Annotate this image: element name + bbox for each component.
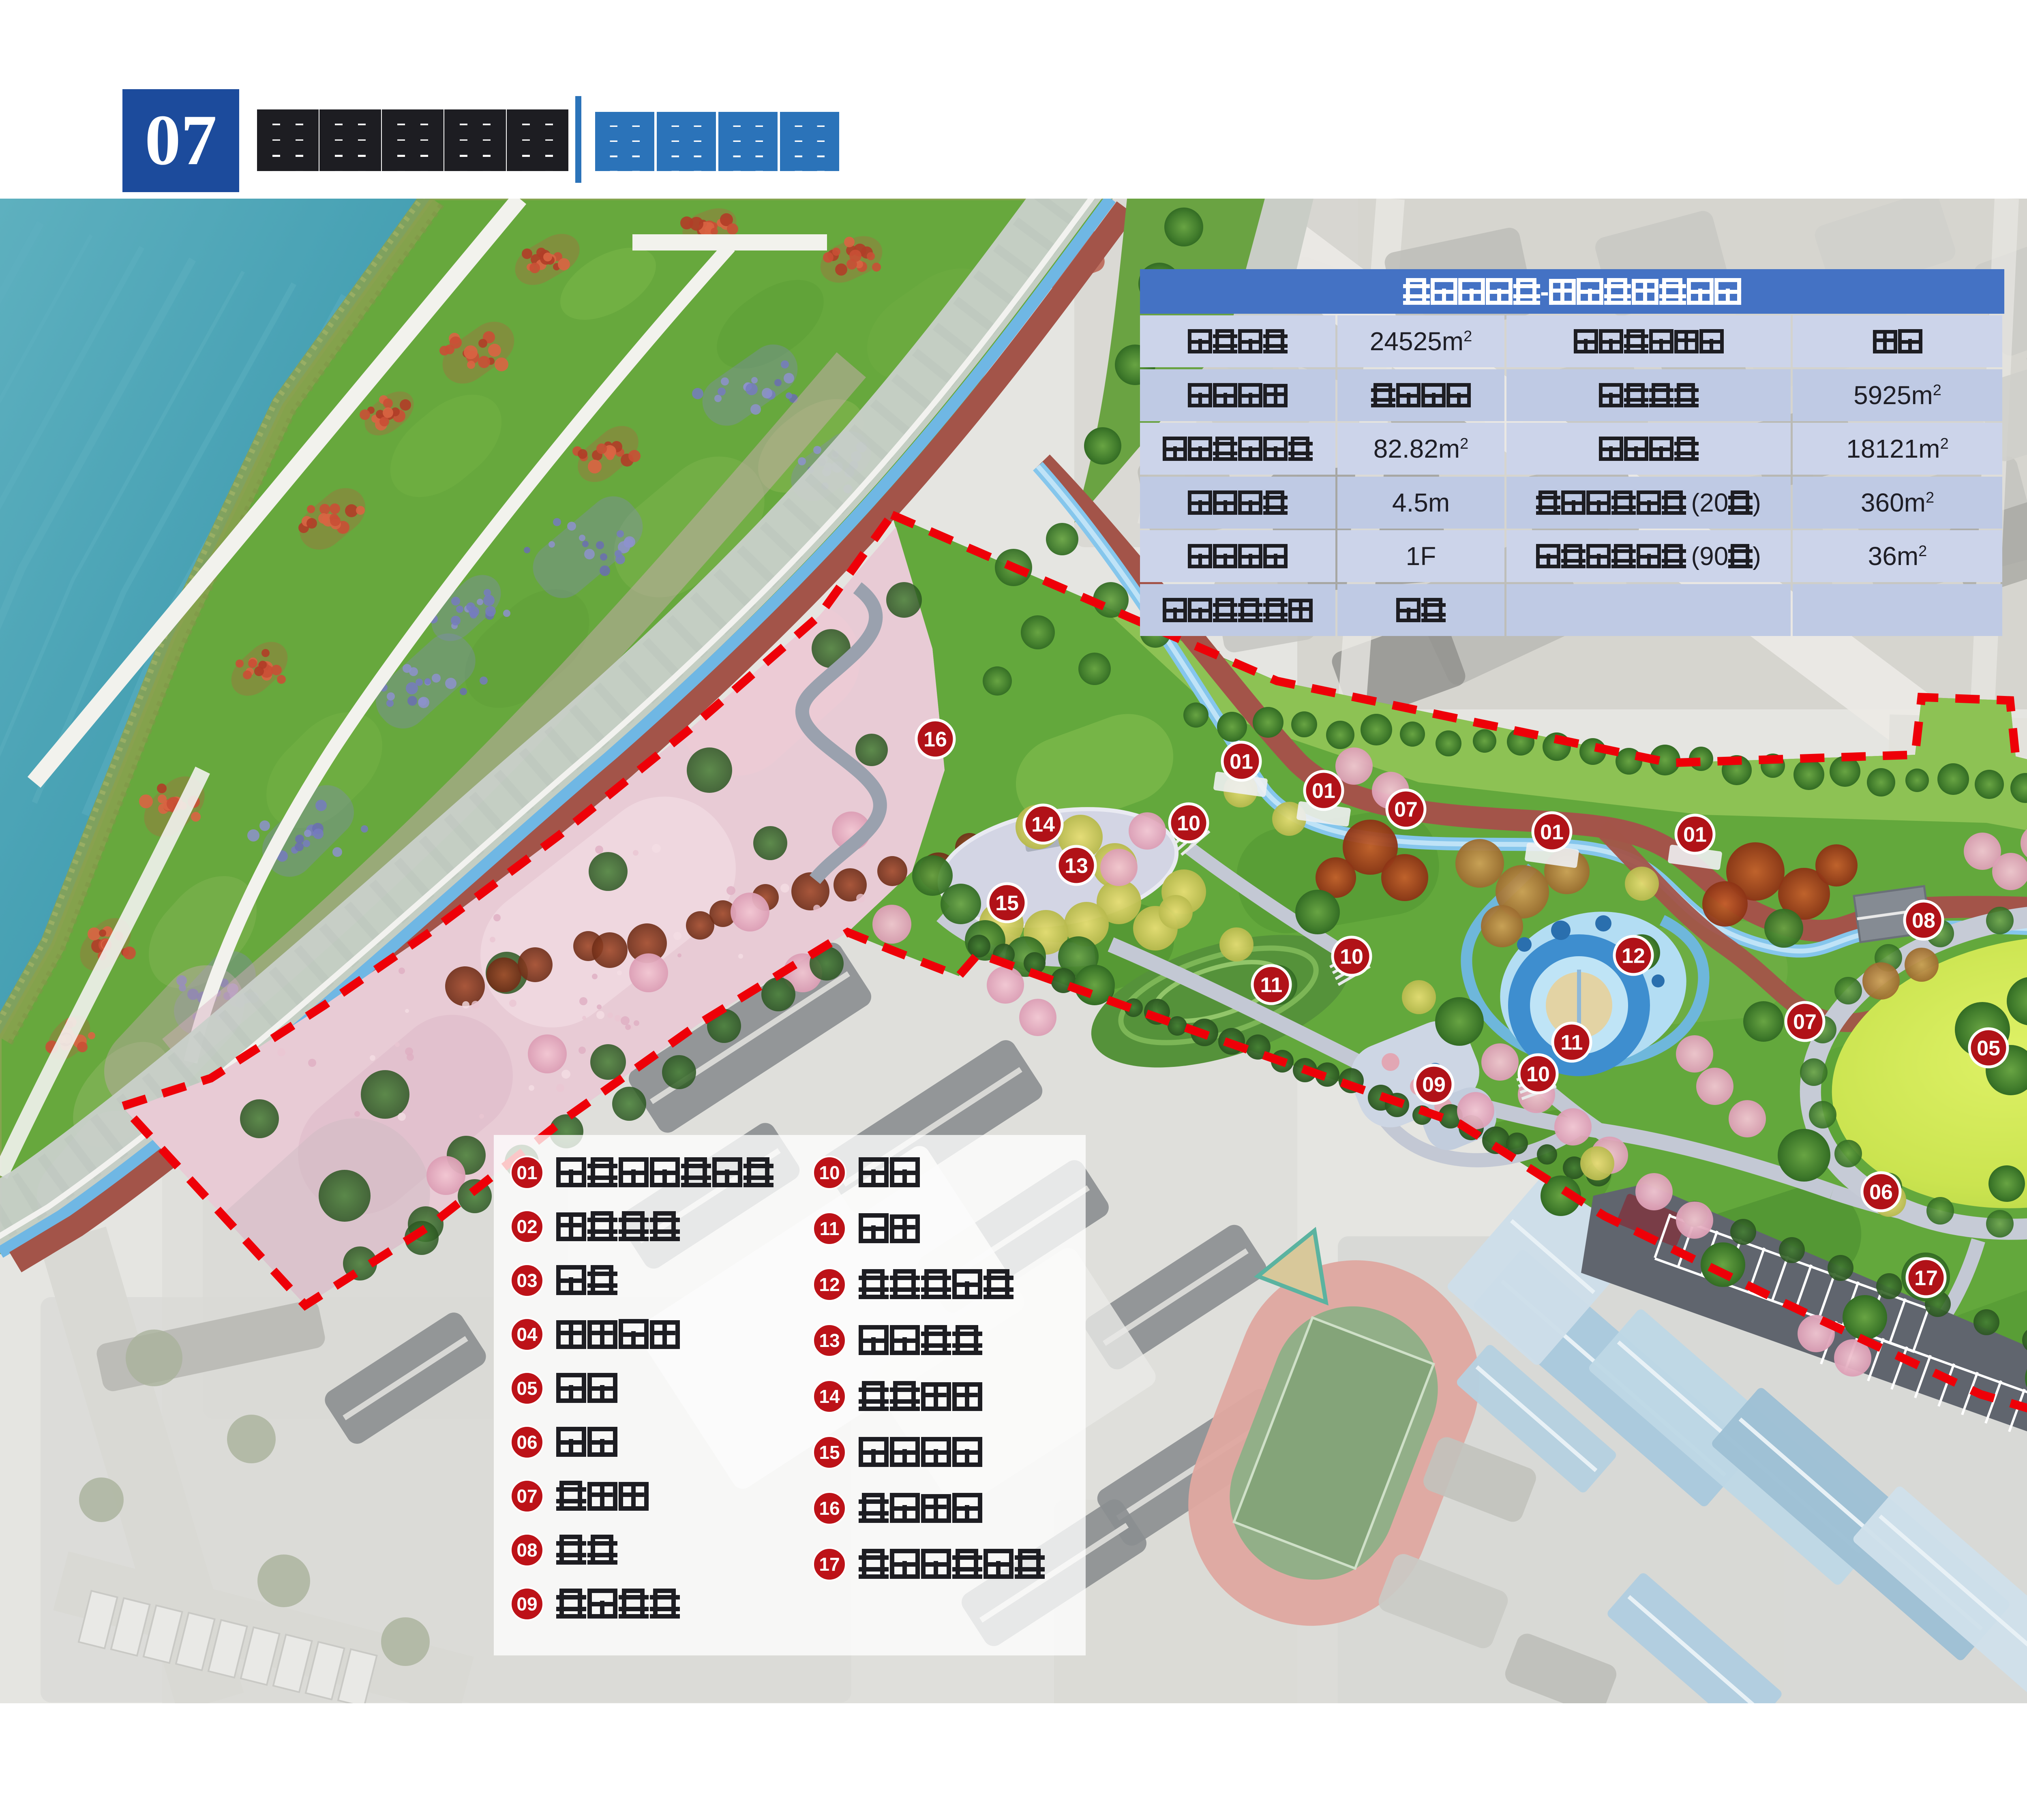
svg-text:01: 01 xyxy=(1683,823,1707,847)
svg-text:08: 08 xyxy=(1912,909,1935,933)
svg-text:07: 07 xyxy=(1793,1011,1817,1034)
svg-text:01: 01 xyxy=(1540,821,1564,844)
svg-text:10: 10 xyxy=(1526,1063,1550,1086)
svg-text:16: 16 xyxy=(924,728,947,752)
svg-text:10: 10 xyxy=(1177,812,1200,835)
svg-text:15: 15 xyxy=(995,892,1019,915)
svg-text:11: 11 xyxy=(1561,1031,1583,1055)
svg-text:06: 06 xyxy=(1869,1181,1893,1204)
svg-text:07: 07 xyxy=(1394,798,1418,822)
svg-text:14: 14 xyxy=(1031,813,1055,837)
svg-text:13: 13 xyxy=(1065,854,1088,878)
svg-text:09: 09 xyxy=(1422,1073,1446,1097)
svg-text:01: 01 xyxy=(1312,779,1335,803)
svg-text:01: 01 xyxy=(1230,750,1253,774)
svg-text:11: 11 xyxy=(1260,974,1283,997)
svg-text:12: 12 xyxy=(1622,944,1645,968)
svg-text:05: 05 xyxy=(1977,1037,2000,1060)
svg-text:17: 17 xyxy=(1914,1267,1938,1290)
svg-text:10: 10 xyxy=(1340,945,1363,969)
